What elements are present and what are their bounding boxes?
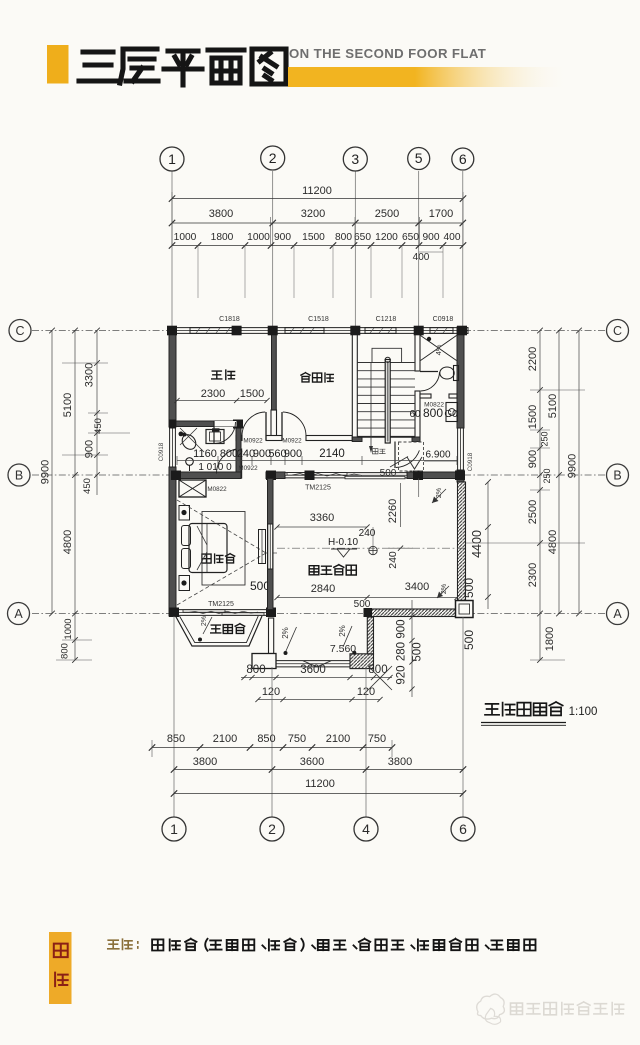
svg-text:800: 800 [368, 664, 387, 676]
svg-text:500: 500 [380, 468, 397, 479]
svg-text:C0918: C0918 [158, 442, 165, 461]
svg-text:4800: 4800 [62, 530, 74, 554]
svg-text:2300: 2300 [201, 388, 225, 400]
svg-text:1000: 1000 [174, 232, 197, 243]
svg-text:500: 500 [354, 599, 371, 610]
svg-text:800: 800 [220, 448, 238, 460]
svg-text:500: 500 [462, 578, 476, 598]
svg-text:C: C [613, 324, 622, 338]
svg-text:1500: 1500 [527, 405, 539, 429]
svg-text:800: 800 [60, 643, 71, 659]
svg-text:800: 800 [423, 406, 443, 420]
svg-text:C0918: C0918 [433, 316, 454, 323]
svg-text:750: 750 [368, 733, 386, 745]
svg-text:280: 280 [396, 642, 408, 661]
svg-text:1800: 1800 [211, 232, 234, 243]
svg-text:M0922: M0922 [238, 465, 258, 472]
svg-text:2: 2 [269, 150, 277, 166]
svg-text:850: 850 [257, 733, 275, 745]
svg-text:500: 500 [412, 642, 424, 661]
svg-text:900: 900 [527, 450, 539, 468]
svg-text:9900: 9900 [40, 460, 52, 484]
svg-text:1: 1 [170, 821, 178, 837]
svg-text:M0922: M0922 [282, 438, 302, 445]
svg-text:1000: 1000 [247, 232, 270, 243]
svg-text:4800: 4800 [547, 530, 559, 554]
svg-text:2100: 2100 [326, 733, 350, 745]
svg-text:750: 750 [288, 733, 306, 745]
svg-text:7.560: 7.560 [330, 643, 356, 655]
svg-text:C1818: C1818 [219, 316, 240, 323]
svg-text:9900: 9900 [567, 454, 579, 478]
svg-text:2200: 2200 [527, 347, 539, 371]
svg-text:A: A [613, 607, 622, 621]
svg-text:3800: 3800 [209, 208, 233, 220]
svg-text:3600: 3600 [300, 664, 326, 676]
svg-text:240: 240 [387, 551, 399, 569]
svg-text:2: 2 [268, 821, 276, 837]
svg-text:1500: 1500 [302, 232, 325, 243]
svg-text:5: 5 [415, 150, 423, 166]
svg-text:900: 900 [274, 232, 291, 243]
svg-text:2%: 2% [201, 616, 208, 626]
svg-text:920: 920 [396, 665, 408, 684]
svg-text:800: 800 [335, 232, 352, 243]
svg-text:4400: 4400 [470, 530, 484, 558]
svg-text:2500: 2500 [527, 500, 539, 524]
svg-text:1: 1 [168, 151, 176, 167]
svg-text:11200: 11200 [302, 185, 332, 197]
svg-text:900: 900 [396, 619, 408, 638]
svg-text:250: 250 [540, 431, 550, 446]
svg-text:B: B [15, 469, 23, 483]
svg-text:120: 120 [262, 686, 280, 698]
svg-text:1800: 1800 [544, 627, 556, 651]
svg-text:5100: 5100 [547, 394, 559, 418]
svg-text:2140: 2140 [319, 448, 345, 460]
svg-text:C1518: C1518 [308, 316, 329, 323]
svg-text:TM2125: TM2125 [305, 485, 331, 492]
svg-text:1200: 1200 [375, 232, 398, 243]
svg-text:2%: 2% [338, 625, 347, 637]
svg-text:2840: 2840 [311, 583, 335, 595]
svg-text:3800: 3800 [388, 756, 412, 768]
svg-text:900: 900 [84, 440, 96, 458]
svg-text:60: 60 [409, 409, 421, 420]
svg-text:1700: 1700 [429, 208, 453, 220]
svg-text:3200: 3200 [301, 208, 325, 220]
svg-text:2%: 2% [436, 488, 443, 498]
svg-text:M0922: M0922 [243, 438, 263, 445]
svg-text:TM2125: TM2125 [208, 601, 234, 608]
svg-text:5100: 5100 [62, 393, 74, 417]
svg-text:400: 400 [444, 232, 461, 243]
svg-text:800: 800 [246, 664, 265, 676]
svg-text:G0: G0 [444, 409, 458, 420]
svg-text:4%: 4% [434, 344, 443, 355]
svg-text:1:100: 1:100 [569, 706, 598, 718]
svg-text:3300: 3300 [84, 363, 96, 387]
svg-text:C0918: C0918 [467, 452, 474, 471]
svg-text:ON THE SECOND FOOR FLAT: ON THE SECOND FOOR FLAT [289, 46, 486, 61]
svg-text:11200: 11200 [305, 778, 335, 790]
svg-text:3: 3 [351, 151, 359, 167]
svg-text:6: 6 [459, 151, 467, 167]
svg-text:A: A [14, 607, 23, 621]
svg-text:650: 650 [354, 232, 371, 243]
svg-text:2260: 2260 [387, 499, 399, 523]
svg-text:1000: 1000 [63, 618, 74, 639]
svg-text:3600: 3600 [300, 756, 324, 768]
svg-text:6.900: 6.900 [425, 450, 450, 461]
svg-text:C: C [15, 324, 24, 338]
svg-text:4: 4 [362, 821, 370, 837]
svg-text:500: 500 [462, 630, 476, 650]
svg-text:3400: 3400 [405, 581, 429, 593]
svg-text:400: 400 [413, 252, 430, 263]
svg-text:2%: 2% [281, 627, 290, 639]
svg-text:B: B [613, 469, 621, 483]
svg-text:H-0.10: H-0.10 [328, 537, 358, 548]
svg-text:850: 850 [167, 733, 185, 745]
svg-text:900: 900 [423, 232, 440, 243]
svg-text:M0822: M0822 [207, 486, 227, 493]
svg-text:650: 650 [402, 232, 419, 243]
svg-text:2100: 2100 [213, 733, 237, 745]
svg-text:2300: 2300 [527, 563, 539, 587]
svg-text:3360: 3360 [310, 512, 334, 524]
svg-text:1160: 1160 [193, 448, 217, 460]
svg-text:2500: 2500 [375, 208, 399, 220]
svg-text:C1218: C1218 [376, 316, 397, 323]
svg-text:1 010 0: 1 010 0 [198, 462, 232, 473]
svg-text:2%: 2% [441, 584, 448, 594]
svg-text:450: 450 [82, 478, 93, 494]
svg-text:900: 900 [284, 448, 302, 460]
svg-text:6: 6 [459, 821, 467, 837]
svg-text:250: 250 [542, 468, 552, 483]
svg-text:3800: 3800 [193, 756, 217, 768]
svg-text:1500: 1500 [240, 388, 264, 400]
